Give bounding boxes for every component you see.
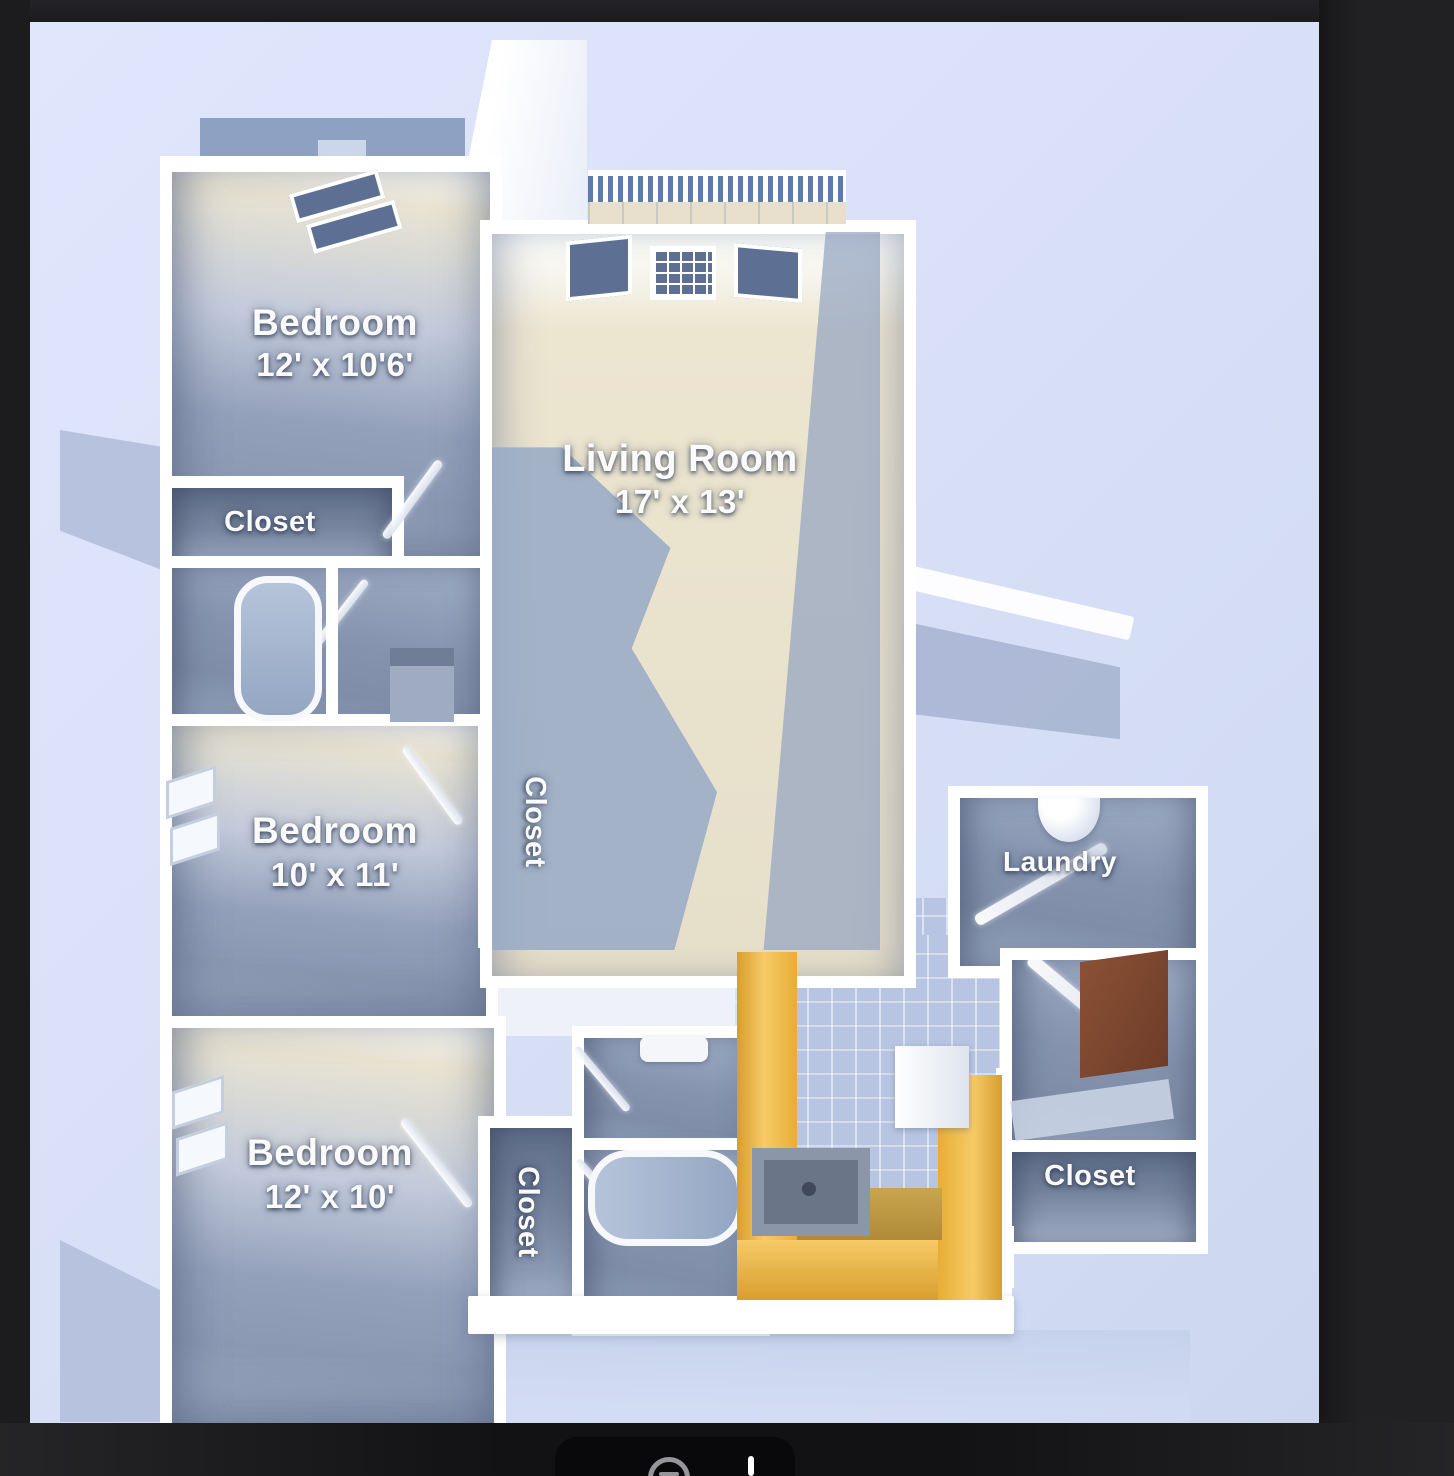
label-closet-right: Closet [1000,1160,1180,1193]
room-closet-right [1000,1140,1208,1254]
cast-shadow-bottom [480,1330,1190,1423]
bathroom1-sink [390,648,454,722]
living-window-right [734,243,802,303]
vanity-mirror [1080,950,1168,1078]
frame-right [1319,0,1454,1476]
frame-top [0,0,1454,22]
frame-left [0,0,30,1476]
bathtub-1 [234,576,322,722]
label-living-dims: 17' x 13' [500,483,860,521]
zoom-out-minus-icon [659,1472,679,1476]
label-closet-top: Closet [170,506,370,539]
label-living-name: Living Room [500,438,860,481]
plan-bottom-wall [468,1296,1014,1334]
living-window-center [650,246,716,300]
label-bedroom1-dims: 12' x 10'6' [190,346,480,384]
label-bedroom2-dims: 10' x 11' [190,856,480,894]
label-closet-center: Closet [511,742,551,902]
toolbar-divider-bar-icon [748,1456,754,1476]
wall-stub-right [1000,1226,1014,1288]
photo-viewer-page: Bedroom 12' x 10'6' Living Room 17' x 13… [0,0,1454,1476]
label-bedroom3-dims: 12' x 10' [185,1178,475,1216]
balcony-floor [588,202,846,224]
bathroom1-partition [326,560,338,714]
toilet-tank [640,1036,708,1062]
kitchen-faucet [802,1182,816,1196]
living-window-left [566,235,632,302]
label-closet-bottom: Closet [504,1137,544,1287]
kitchen-stove [895,1046,969,1128]
bathtub-2 [588,1150,744,1246]
label-bedroom3-name: Bedroom [185,1132,475,1174]
label-bedroom2-name: Bedroom [190,810,480,852]
label-laundry: Laundry [960,846,1160,878]
label-bedroom1-name: Bedroom [190,302,480,344]
